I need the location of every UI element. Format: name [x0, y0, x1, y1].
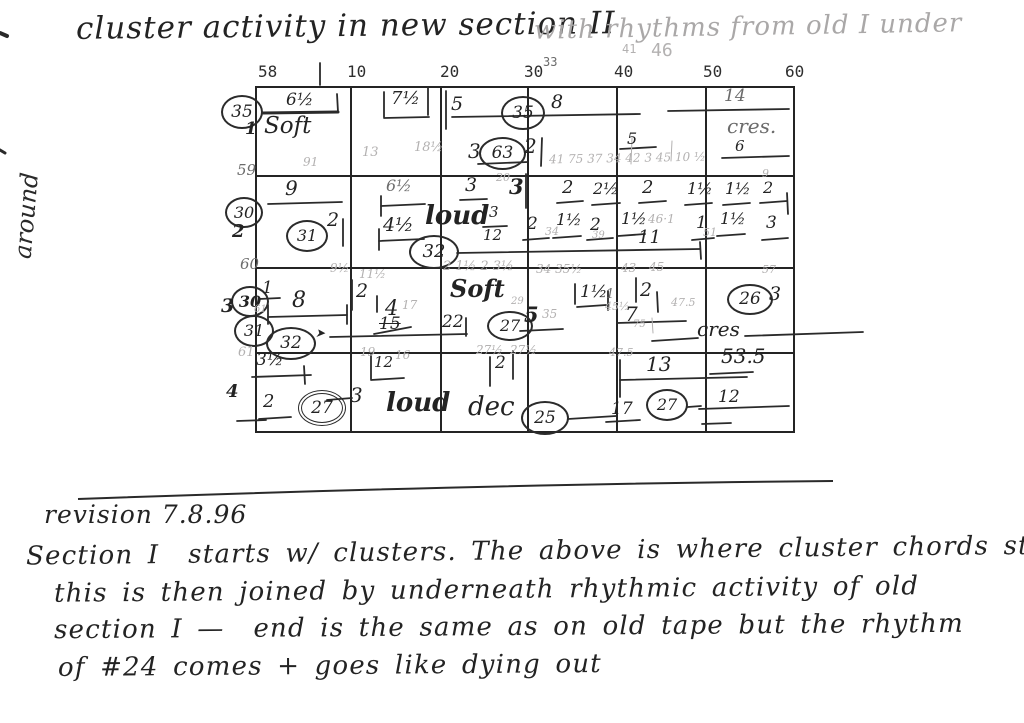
grid-annotation: 20 [496, 172, 510, 183]
circled-event-number: 63 [479, 137, 526, 170]
grid-annotation: 14 [724, 88, 746, 105]
dynamics-label: dec [468, 394, 515, 420]
grid-annotation: 1½ [725, 181, 751, 197]
grid-annotation: 61 [254, 305, 267, 315]
grid-annotation: 18½ [414, 141, 443, 154]
grid-annotation: 59 [237, 163, 256, 178]
arrow-mark: ➤ [315, 327, 325, 339]
column-header: 60 [785, 64, 804, 80]
dynamics-label: cres [697, 319, 740, 339]
title-annotation: with rhythms from old I under [534, 8, 963, 45]
circled-event-number: 25 [521, 401, 569, 435]
hand-stroke [0, 150, 5, 153]
grid-annotation: 2 [642, 179, 653, 197]
dynamics-label: Soft [264, 115, 311, 138]
grid-annotation: 4½ [383, 216, 414, 235]
grid-annotation: 57 [762, 264, 776, 275]
grid-annotation: 9 [285, 178, 298, 198]
grid-annotation: 1½ [556, 212, 582, 228]
grid-annotation: 2 [763, 180, 773, 196]
grid-annotation: 8 [292, 290, 306, 312]
grid-annotation: 1½ [580, 284, 607, 301]
grid-annotation: 8 [551, 93, 563, 112]
grid-annotation: 5 [451, 95, 463, 114]
column-header: 46 [651, 42, 673, 60]
grid-annotation: 41 75 37 34 42 3 45 10 ½ [549, 151, 706, 166]
grid-annotation: 2 [527, 216, 538, 233]
grid-annotation: 12 [483, 228, 502, 243]
grid-annotation: 34 35½ [536, 263, 582, 275]
circled-event-number: 26 [727, 284, 773, 315]
grid-annotation: 13 [362, 146, 379, 159]
grid-annotation: 3 [350, 385, 363, 405]
hand-stroke [0, 33, 7, 36]
grid-annotation: 2 [495, 355, 506, 372]
grid-annotation: 47.5 [671, 297, 696, 308]
grid-annotation: 2 [524, 136, 537, 156]
grid-annotation: 35 [542, 308, 557, 320]
grid-annotation: 3 [221, 297, 234, 316]
note-line: section I — end is the same as on old ta… [54, 609, 964, 645]
grid-line-vertical [350, 86, 352, 433]
column-header: 30 [524, 64, 543, 80]
column-header: 10 [347, 64, 366, 80]
grid-annotation: 4 [226, 383, 239, 401]
grid-annotation: 2 [232, 223, 245, 241]
grid-annotation: 39 [592, 231, 605, 241]
circled-event-number: 31 [286, 220, 328, 252]
grid-annotation: 51 [703, 227, 717, 238]
circled-event-number: 27 [646, 389, 688, 421]
grid-annotation: 5 [524, 304, 539, 325]
revision-note: revision 7.8.96 [44, 500, 247, 529]
grid-annotation: 2 [263, 393, 274, 411]
grid-annotation: 45 [649, 261, 664, 273]
grid-annotation: 15 [379, 316, 401, 333]
grid-annotation: 7½ [391, 90, 420, 108]
grid-annotation: 1½ [621, 211, 647, 227]
grid-line-vertical [705, 86, 707, 433]
grid-annotation: 1 [262, 280, 273, 297]
grid-annotation: 2 [640, 281, 652, 300]
grid-annotation: 3½ [256, 352, 283, 369]
column-header: 58 [258, 64, 277, 80]
column-header: 40 [614, 64, 633, 80]
note-line: of #24 comes + goes like dying out [58, 649, 602, 683]
grid-annotation: 1½ [720, 211, 746, 227]
note-line: Section I starts w/ clusters. The above … [26, 531, 1024, 572]
grid-annotation: 61 [238, 346, 255, 359]
grid-annotation: 19 [360, 346, 375, 358]
grid-annotation: 9½ [330, 262, 349, 274]
grid-annotation: 60 [240, 257, 259, 272]
grid-annotation: 27½ [510, 344, 537, 356]
grid-annotation: 2 1½ 2 3½ [443, 260, 514, 273]
grid-line-horizontal [255, 175, 795, 177]
grid-annotation: 2 [356, 282, 368, 301]
grid-annotation: 3 [769, 285, 781, 304]
grid-annotation: 5 [627, 131, 637, 147]
grid-line-vertical [616, 86, 618, 433]
column-header: 33 [543, 56, 557, 68]
grid-annotation: 13 [646, 354, 671, 374]
grid-annotation: 12 [374, 355, 393, 370]
grid-annotation: 3 [489, 205, 499, 220]
grid-annotation: 22 [442, 314, 464, 331]
grid-annotation: 11½ [359, 268, 386, 280]
grid-annotation: 17 [402, 299, 417, 311]
grid-annotation: 43 [621, 262, 636, 274]
grid-annotation: 1 [245, 121, 257, 138]
grid-annotation: 2 [327, 211, 339, 230]
note-line: this is then joined by underneath rhythm… [54, 571, 919, 609]
grid-annotation: 3 [766, 215, 777, 232]
dynamics-label: cres. [727, 116, 776, 136]
dynamics-label: Soft [450, 277, 505, 301]
grid-annotation: 16 [395, 349, 410, 361]
column-header: 41 [622, 43, 636, 55]
grid-annotation: 47.5 [609, 347, 634, 358]
grid-annotation: 1½ [687, 181, 713, 197]
column-header: 20 [440, 64, 459, 80]
grid-annotation: 6½ [286, 92, 313, 109]
grid-annotation: 3 [509, 176, 524, 197]
grid-annotation: 3 [465, 176, 477, 195]
grid-annotation: 2½ [593, 181, 619, 197]
dynamics-label: loud [386, 390, 450, 416]
scanned-sketch-page: cluster activity in new section II with … [0, 0, 1024, 723]
grid-annotation: 75 [633, 320, 646, 330]
grid-annotation: 91 [303, 156, 318, 168]
grid-annotation: 6 [735, 139, 745, 154]
margin-note: around [9, 154, 48, 260]
grid-annotation: 17 [611, 401, 633, 418]
grid-annotation: 2 [562, 179, 573, 197]
grid-annotation: 53.5 [721, 346, 766, 366]
circled-event-number: 27 [298, 390, 346, 426]
separator-swoosh [78, 481, 833, 499]
grid-annotation: 46·1 [648, 213, 675, 225]
circled-event-number: 35 [501, 96, 545, 130]
column-header: 50 [703, 64, 722, 80]
grid-annotation: 29 [511, 297, 524, 307]
grid-annotation: 6½ [386, 178, 412, 194]
dynamics-label: loud [425, 203, 489, 229]
grid-annotation: 11 [638, 229, 661, 247]
grid-annotation: 12 [718, 389, 740, 406]
